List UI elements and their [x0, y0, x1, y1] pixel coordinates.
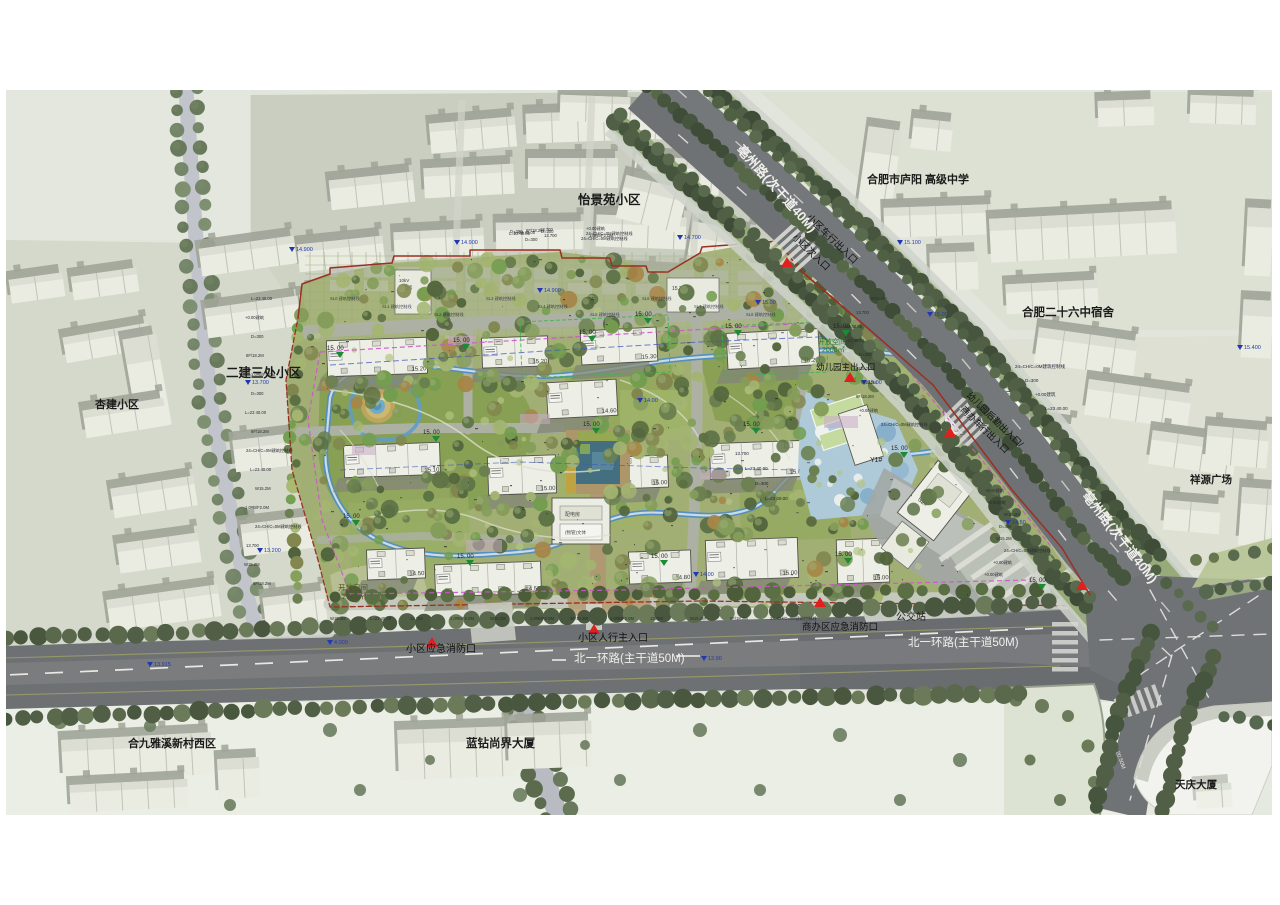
svg-text:SL5 建筑控制线: SL5 建筑控制线: [590, 311, 620, 318]
svg-text:6F/18.2M: 6F/18.2M: [253, 581, 271, 586]
svg-text:15. 00: 15. 00: [327, 346, 344, 352]
svg-text:W15.2M: W15.2M: [1004, 512, 1020, 517]
svg-text:13.700: 13.700: [246, 543, 259, 548]
svg-text:6F/18.2M: 6F/18.2M: [570, 616, 588, 621]
svg-text:15. 00: 15. 00: [835, 552, 852, 558]
svg-text:公交站: 公交站: [896, 610, 926, 623]
svg-text:W15.2M: W15.2M: [871, 296, 887, 301]
svg-text:W15.2M: W15.2M: [996, 536, 1012, 541]
svg-text:北一环路(主干道50M): 北一环路(主干道50M): [908, 635, 1019, 649]
svg-text:幼儿园主出入口: 幼儿园主出入口: [816, 362, 876, 372]
svg-text:1.0#B/F2.0M: 1.0#B/F2.0M: [530, 616, 554, 621]
svg-text:24=CH/C=0M建筑控制线: 24=CH/C=0M建筑控制线: [881, 421, 928, 428]
svg-text:15. 00: 15. 00: [453, 338, 470, 344]
svg-text:Y1#: Y1#: [870, 457, 883, 464]
svg-text:SL3 建筑控制线: SL3 建筑控制线: [486, 295, 516, 302]
svg-text:13.700: 13.700: [410, 616, 423, 621]
svg-text:14.00: 14.00: [700, 572, 714, 578]
svg-text:14.50: 14.50: [1012, 520, 1026, 526]
svg-text:15. 00: 15. 00: [423, 430, 440, 436]
svg-text:6F/18.2M: 6F/18.2M: [251, 429, 269, 434]
svg-text:合肥市庐阳 高级中学: 合肥市庐阳 高级中学: [867, 172, 969, 186]
svg-text:L=23 40.00: L=23 40.00: [745, 466, 768, 471]
svg-text:13.200: 13.200: [264, 548, 281, 554]
svg-text:L=23 40.00: L=23 40.00: [1045, 406, 1068, 411]
svg-text:北一环路(主干道50M): 北一环路(主干道50M): [574, 651, 685, 665]
svg-text:+0.00建筑: +0.00建筑: [993, 559, 1013, 566]
svg-text:15. 00: 15. 00: [651, 554, 668, 560]
svg-text:W15.2M: W15.2M: [330, 616, 346, 621]
svg-text:15. 00: 15. 00: [635, 312, 652, 318]
svg-text:+0.00建筑: +0.00建筑: [984, 571, 1004, 578]
svg-text:SL8 建筑控制线: SL8 建筑控制线: [746, 311, 776, 318]
svg-text:合肥二十六中宿舍: 合肥二十六中宿舍: [1022, 305, 1114, 319]
svg-text:1.0#B/F2.0M: 1.0#B/F2.0M: [610, 616, 634, 621]
svg-text:2500㎡: 2500㎡: [342, 592, 367, 601]
svg-text:D=300: D=300: [541, 229, 554, 234]
svg-text:13.90: 13.90: [708, 656, 722, 662]
svg-text:1.0#B/F2.0M: 1.0#B/F2.0M: [450, 616, 474, 621]
svg-text:祥源广场: 祥源广场: [1190, 473, 1232, 486]
svg-text:6F/18.2M: 6F/18.2M: [730, 616, 748, 621]
svg-text:L=23 40.00: L=23 40.00: [245, 410, 267, 415]
svg-text:15. 00: 15. 00: [725, 324, 742, 330]
svg-text:D=300: D=300: [1025, 378, 1039, 383]
svg-text:15.400: 15.400: [1244, 345, 1261, 351]
svg-text:15. 00: 15. 00: [743, 422, 760, 428]
svg-text:15. 00: 15. 00: [343, 514, 360, 520]
svg-text:小区人行主入口: 小区人行主入口: [578, 631, 648, 644]
svg-text:蓝钻尚界大厦: 蓝钻尚界大厦: [466, 736, 535, 750]
svg-text:14.900: 14.900: [544, 288, 561, 294]
svg-text:14.700: 14.700: [684, 235, 701, 241]
svg-text:开放空间: 开放空间: [338, 582, 368, 592]
svg-text:W15.2M: W15.2M: [690, 616, 706, 621]
svg-text:15. 00: 15. 00: [1029, 578, 1046, 584]
svg-text:D=300: D=300: [251, 334, 264, 339]
svg-text:SL7 建筑控制线: SL7 建筑控制线: [694, 303, 724, 310]
svg-text:小区应急消防口: 小区应急消防口: [406, 642, 476, 655]
svg-text:开放空间: 开放空间: [818, 337, 846, 346]
svg-text:15. 00: 15. 00: [891, 446, 908, 452]
svg-text:24=CH/C=0M建筑控制线: 24=CH/C=0M建筑控制线: [1015, 363, 1066, 370]
svg-text:商办区应急消防口: 商办区应急消防口: [802, 621, 878, 633]
svg-text:+0.00建筑: +0.00建筑: [985, 487, 1005, 494]
svg-text:24=CH/C=0M建筑控制线: 24=CH/C=0M建筑控制线: [770, 615, 817, 622]
svg-text:二建三处小区: 二建三处小区: [226, 365, 302, 380]
svg-text:24=CH/C=0M建筑控制线: 24=CH/C=0M建筑控制线: [246, 447, 293, 454]
svg-text:13.700: 13.700: [650, 616, 663, 621]
svg-text:14.900: 14.900: [296, 247, 313, 253]
svg-text:15.100: 15.100: [904, 240, 921, 246]
svg-text:24=CH/C=0M建筑控制线: 24=CH/C=0M建筑控制线: [581, 235, 628, 242]
svg-text:D=300: D=300: [251, 391, 264, 396]
svg-text:L=23 40.00: L=23 40.00: [370, 616, 392, 621]
svg-text:SL4 建筑控制线: SL4 建筑控制线: [538, 303, 568, 310]
svg-text:D=300: D=300: [999, 524, 1012, 529]
svg-text:13.700: 13.700: [252, 380, 269, 386]
svg-text:SL1 建筑控制线: SL1 建筑控制线: [382, 303, 412, 310]
svg-text:24=CH/C=0M建筑控制线: 24=CH/C=0M建筑控制线: [255, 523, 302, 530]
svg-text:L=23 40.00: L=23 40.00: [841, 324, 863, 329]
svg-text:L=23 40.00: L=23 40.00: [843, 338, 865, 343]
svg-text:24=CH/C=0M建筑控制线: 24=CH/C=0M建筑控制线: [1004, 547, 1051, 554]
svg-text:6F/18.2M: 6F/18.2M: [246, 353, 264, 358]
svg-text:W15.2M: W15.2M: [255, 486, 271, 491]
svg-text:L=23 40.00: L=23 40.00: [250, 467, 272, 472]
svg-text:杏建小区: 杏建小区: [94, 397, 139, 411]
svg-text:1.0#B/F2.0M: 1.0#B/F2.0M: [245, 505, 269, 510]
svg-text:怡景苑小区: 怡景苑小区: [578, 192, 641, 207]
svg-text:14.00: 14.00: [644, 398, 658, 404]
svg-text:SL6 建筑控制线: SL6 建筑控制线: [642, 295, 672, 302]
svg-text:14.900: 14.900: [461, 240, 478, 246]
svg-text:13.915: 13.915: [154, 662, 171, 668]
svg-text:D=300: D=300: [859, 352, 872, 357]
svg-text:W15.2M: W15.2M: [490, 616, 506, 621]
svg-text:15.00: 15.00: [762, 300, 776, 306]
svg-text:合九雅溪新村西区: 合九雅溪新村西区: [128, 736, 216, 750]
svg-text:13.700: 13.700: [856, 310, 869, 315]
svg-text:+0.00建筑: +0.00建筑: [245, 314, 265, 321]
svg-text:W15.2M: W15.2M: [861, 380, 877, 385]
svg-text:15. 00: 15. 00: [579, 330, 596, 336]
svg-text:6F/18.2M: 6F/18.2M: [856, 394, 874, 399]
svg-text:天庆大厦: 天庆大厦: [1175, 778, 1217, 791]
svg-text:SL2 建筑控制线: SL2 建筑控制线: [434, 311, 464, 318]
svg-text:+0.00建筑: +0.00建筑: [987, 499, 1007, 506]
svg-text:4.000: 4.000: [334, 640, 348, 646]
svg-text:15. 00: 15. 00: [583, 422, 600, 428]
svg-text:24=CH/C=0M建筑控制线: 24=CH/C=0M建筑控制线: [586, 230, 633, 237]
svg-text:+0.00建筑: +0.00建筑: [1035, 391, 1056, 398]
svg-text:L=23 40.00: L=23 40.00: [251, 296, 273, 301]
svg-text:13.700: 13.700: [735, 451, 749, 456]
svg-text:D=300: D=300: [525, 237, 538, 242]
svg-text:L=23 40.00: L=23 40.00: [765, 496, 788, 501]
svg-text:2000㎡: 2000㎡: [822, 346, 845, 354]
svg-text:15. 00: 15. 00: [457, 554, 474, 560]
svg-text:+0.00建筑: +0.00建筑: [859, 407, 879, 414]
svg-text:D=300: D=300: [755, 481, 769, 486]
svg-text:W15.2M: W15.2M: [244, 562, 260, 567]
svg-text:SL0 建筑控制线: SL0 建筑控制线: [330, 295, 360, 302]
svg-text:15.00: 15.00: [934, 312, 948, 318]
svg-text:L=23 40.00: L=23 40.00: [509, 231, 531, 236]
